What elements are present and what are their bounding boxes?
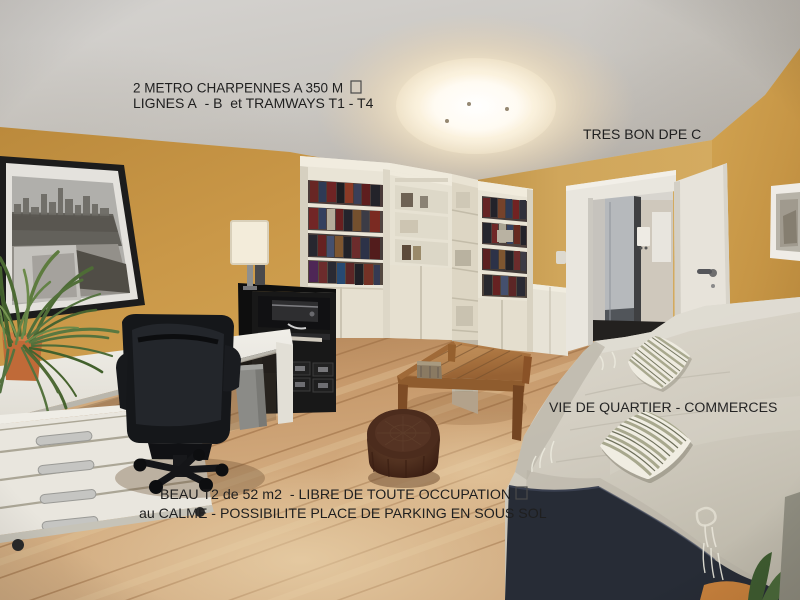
svg-text:TRES BON DPE C: TRES BON DPE C [583, 126, 701, 142]
svg-text:2 METRO CHARPENNES A 350 M: 2 METRO CHARPENNES A 350 M [133, 81, 343, 96]
svg-text:VIE DE QUARTIER - COMMERCES: VIE DE QUARTIER - COMMERCES [549, 399, 777, 415]
svg-text:au CALME - POSSIBILITE PLACE D: au CALME - POSSIBILITE PLACE DE PARKING … [139, 505, 547, 521]
svg-text:LIGNES A - B et TRAMWAYS T1: LIGNES A - B et TRAMWAYS T1 - T4 [133, 95, 374, 111]
svg-text:BEAU T2 de 52 m2 - LIBRE DE T: BEAU T2 de 52 m2 - LIBRE DE TOUTE OCCUPA… [160, 487, 511, 503]
